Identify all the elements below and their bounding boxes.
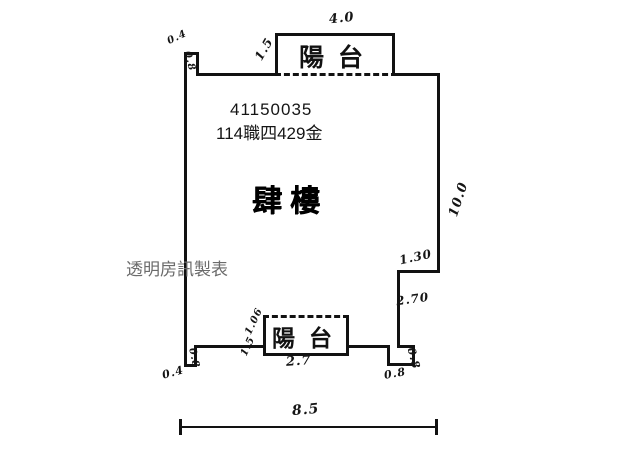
dim-right-lower: 2.70 — [395, 290, 430, 308]
watermark-text: 透明房訊製表 — [126, 255, 228, 280]
wall-right-step — [397, 270, 440, 273]
serial-number: 41150035 — [230, 100, 312, 120]
balcony-bottom-label: 陽台 — [266, 318, 346, 353]
dim-balcony-bottom-width: 2.7 — [286, 353, 313, 370]
dim-tl-notch-width: 0.4 — [166, 28, 189, 47]
balcony-bottom-outline: 陽台 — [263, 315, 349, 356]
balcony-top-outline: 陽台 — [275, 33, 395, 76]
wall-right-lower — [397, 270, 400, 348]
dim-balcony-top-width: 4.0 — [328, 10, 355, 28]
dim-br-notch-height: 0.8 — [404, 346, 422, 371]
wall-br-notch-left — [387, 345, 390, 366]
floor-name: 肆樓 — [252, 176, 328, 220]
balcony-top-label: 陽台 — [278, 36, 392, 76]
dim-right-height: 10.0 — [446, 180, 471, 219]
dim-balcony-top-depth: 1.5 — [252, 35, 276, 63]
wall-top-left-segment — [196, 73, 278, 76]
dim-bl-notch-width: 0.4 — [161, 363, 186, 381]
dimension-line-bottom — [180, 426, 437, 428]
wall-right-upper — [437, 73, 440, 273]
dim-br-notch-width: 0.8 — [383, 365, 407, 382]
wall-top-right-segment — [394, 73, 440, 76]
wall-bottom-right-segment — [347, 345, 390, 348]
dim-right-step: 1.30 — [398, 247, 433, 268]
dim-balcony-bottom-depth-upper: 1.06 — [243, 306, 265, 336]
dim-total-width: 8.5 — [291, 401, 320, 419]
dimension-tick-left — [179, 419, 182, 435]
dimension-tick-right — [435, 419, 438, 435]
floor-plan: 陽台 陽台 41150035 114職四429金 肆樓 透明房訊製表 4.0 1… — [0, 0, 625, 463]
unit-number: 114職四429金 — [216, 119, 322, 144]
wall-left — [184, 52, 187, 367]
